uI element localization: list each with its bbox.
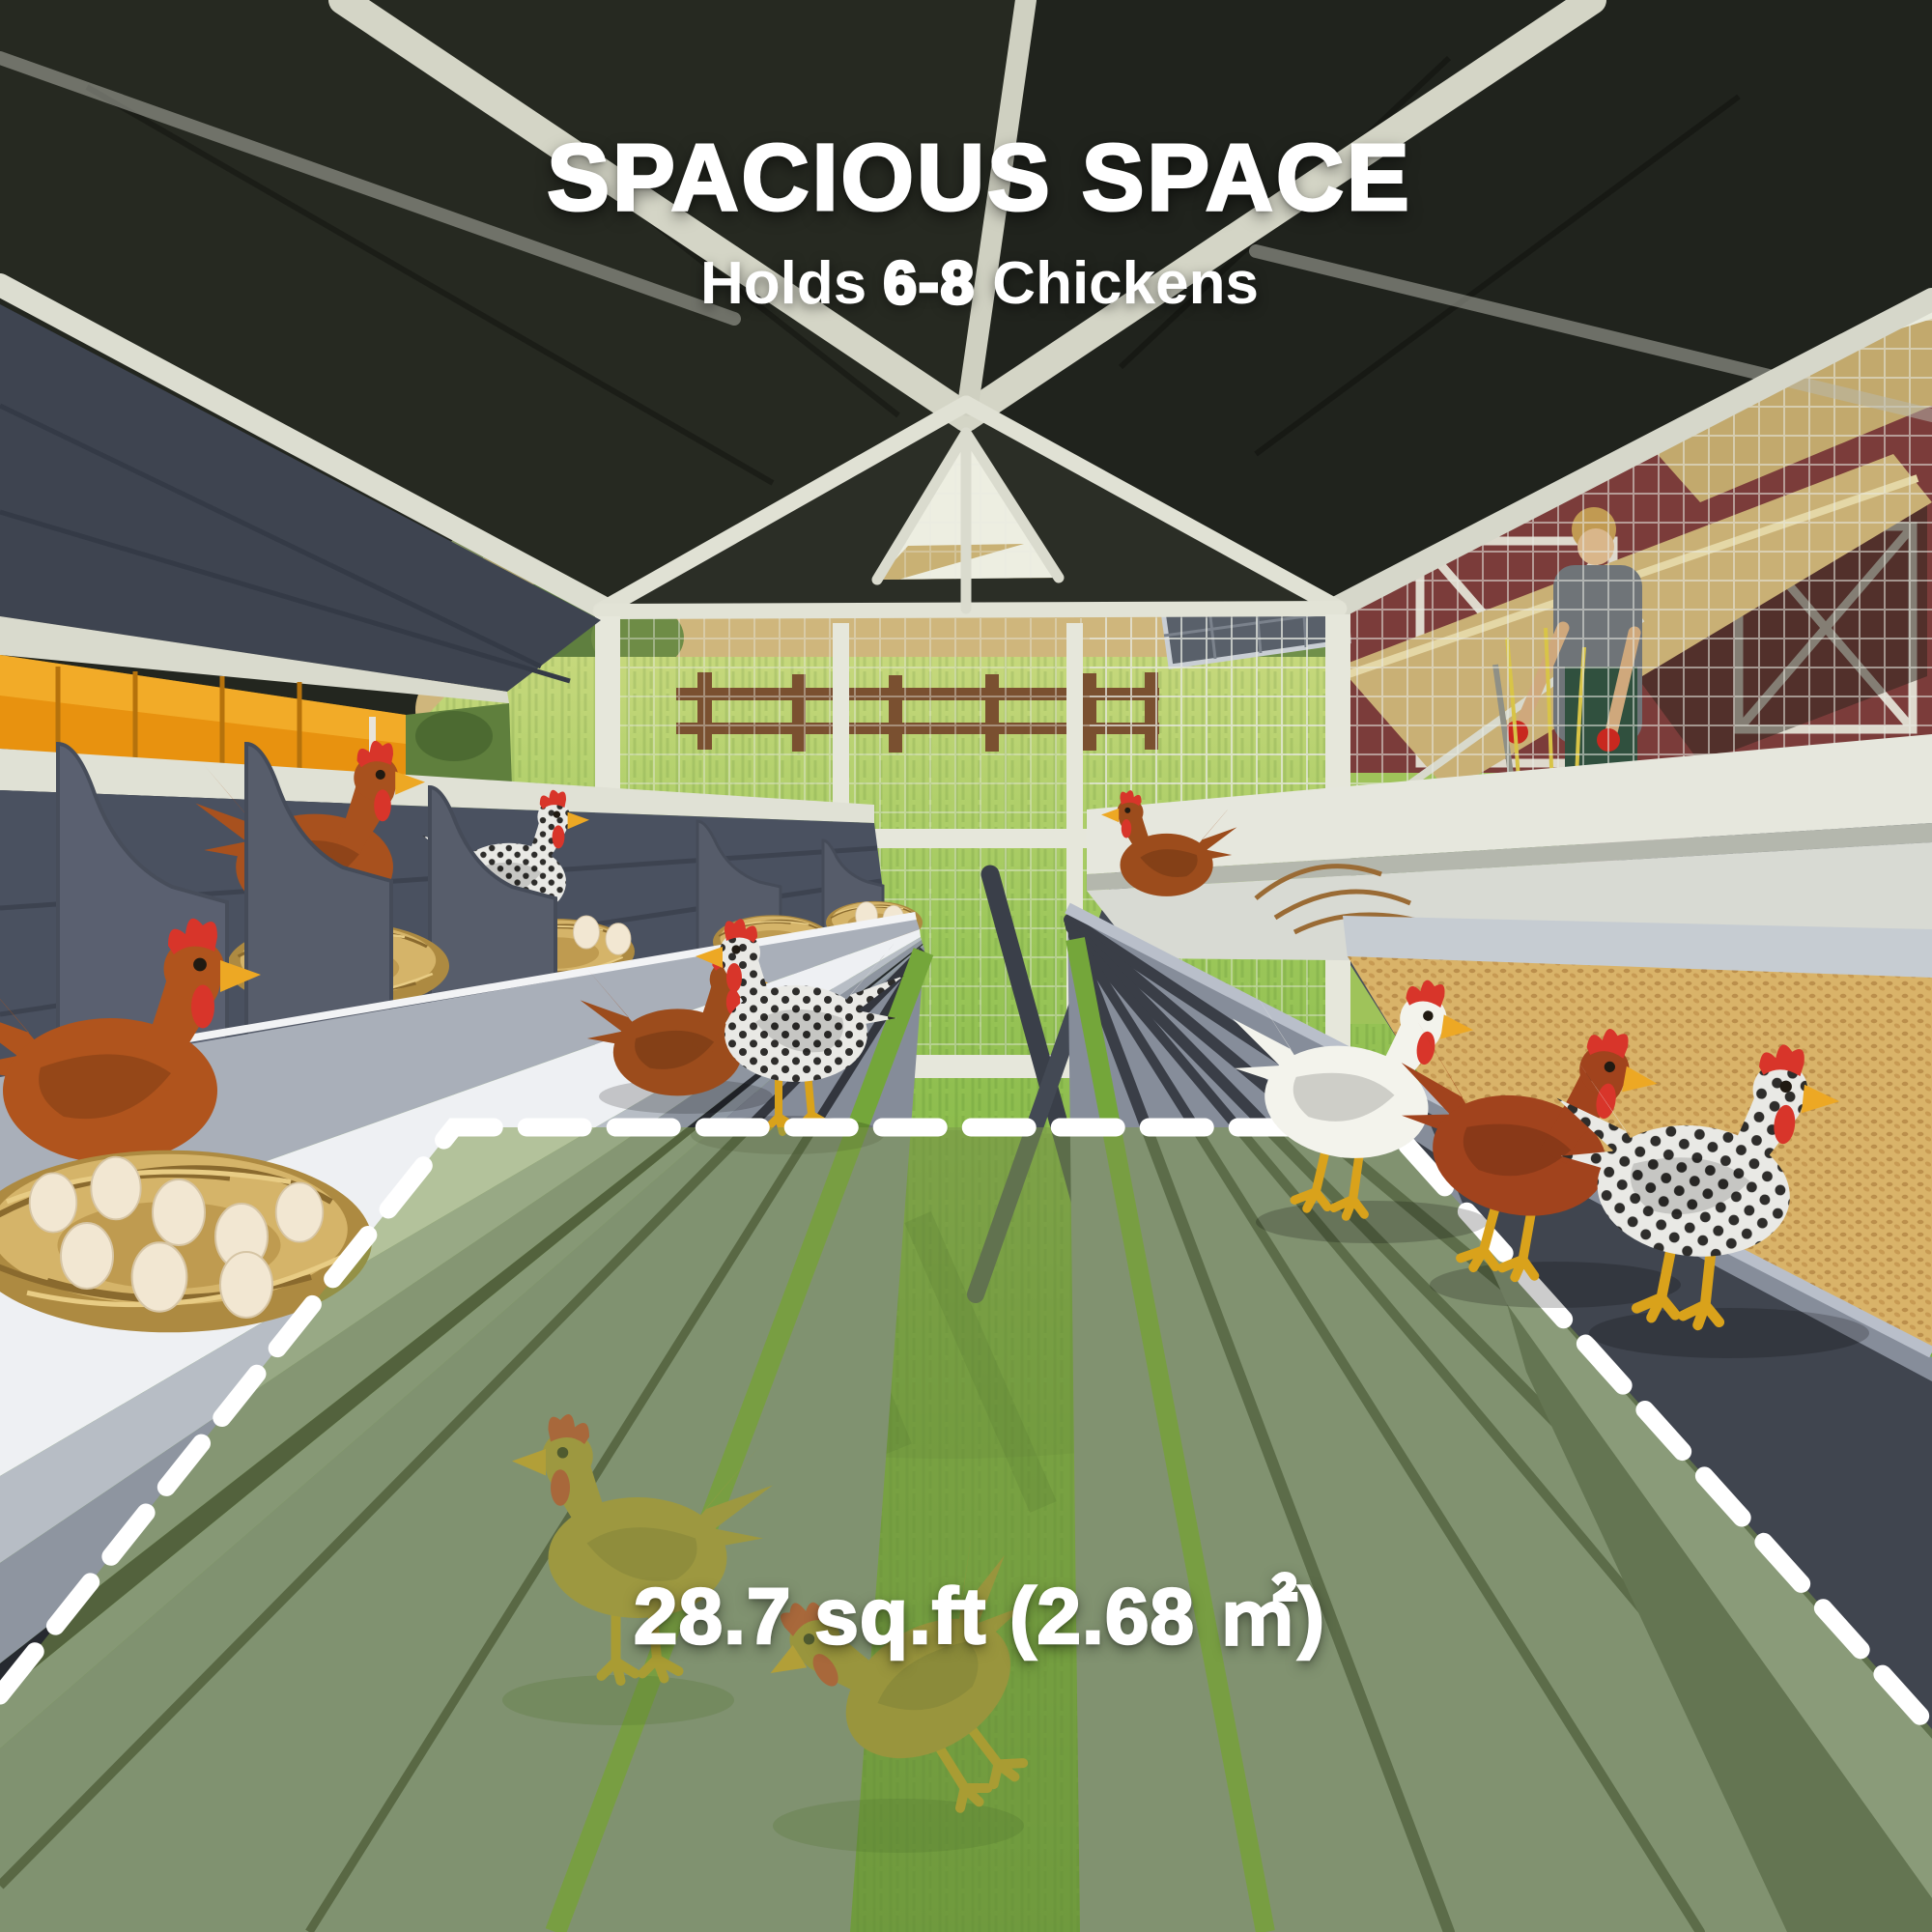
headline: SPACIOUS SPACE <box>14 124 1932 232</box>
coop-marketing-image: SPACIOUS SPACE Holds 6-8 Chickens 28.7 s… <box>0 0 1932 1932</box>
floor-area-label: 28.7 sq.ft (2.68 ㎡) <box>14 1551 1932 1666</box>
capacity-highlight: 6-8 <box>883 250 976 317</box>
subtitle-prefix: Holds <box>700 250 883 317</box>
subtitle-suffix: Chickens <box>976 250 1259 317</box>
subheadline: Holds 6-8 Chickens <box>14 249 1932 318</box>
